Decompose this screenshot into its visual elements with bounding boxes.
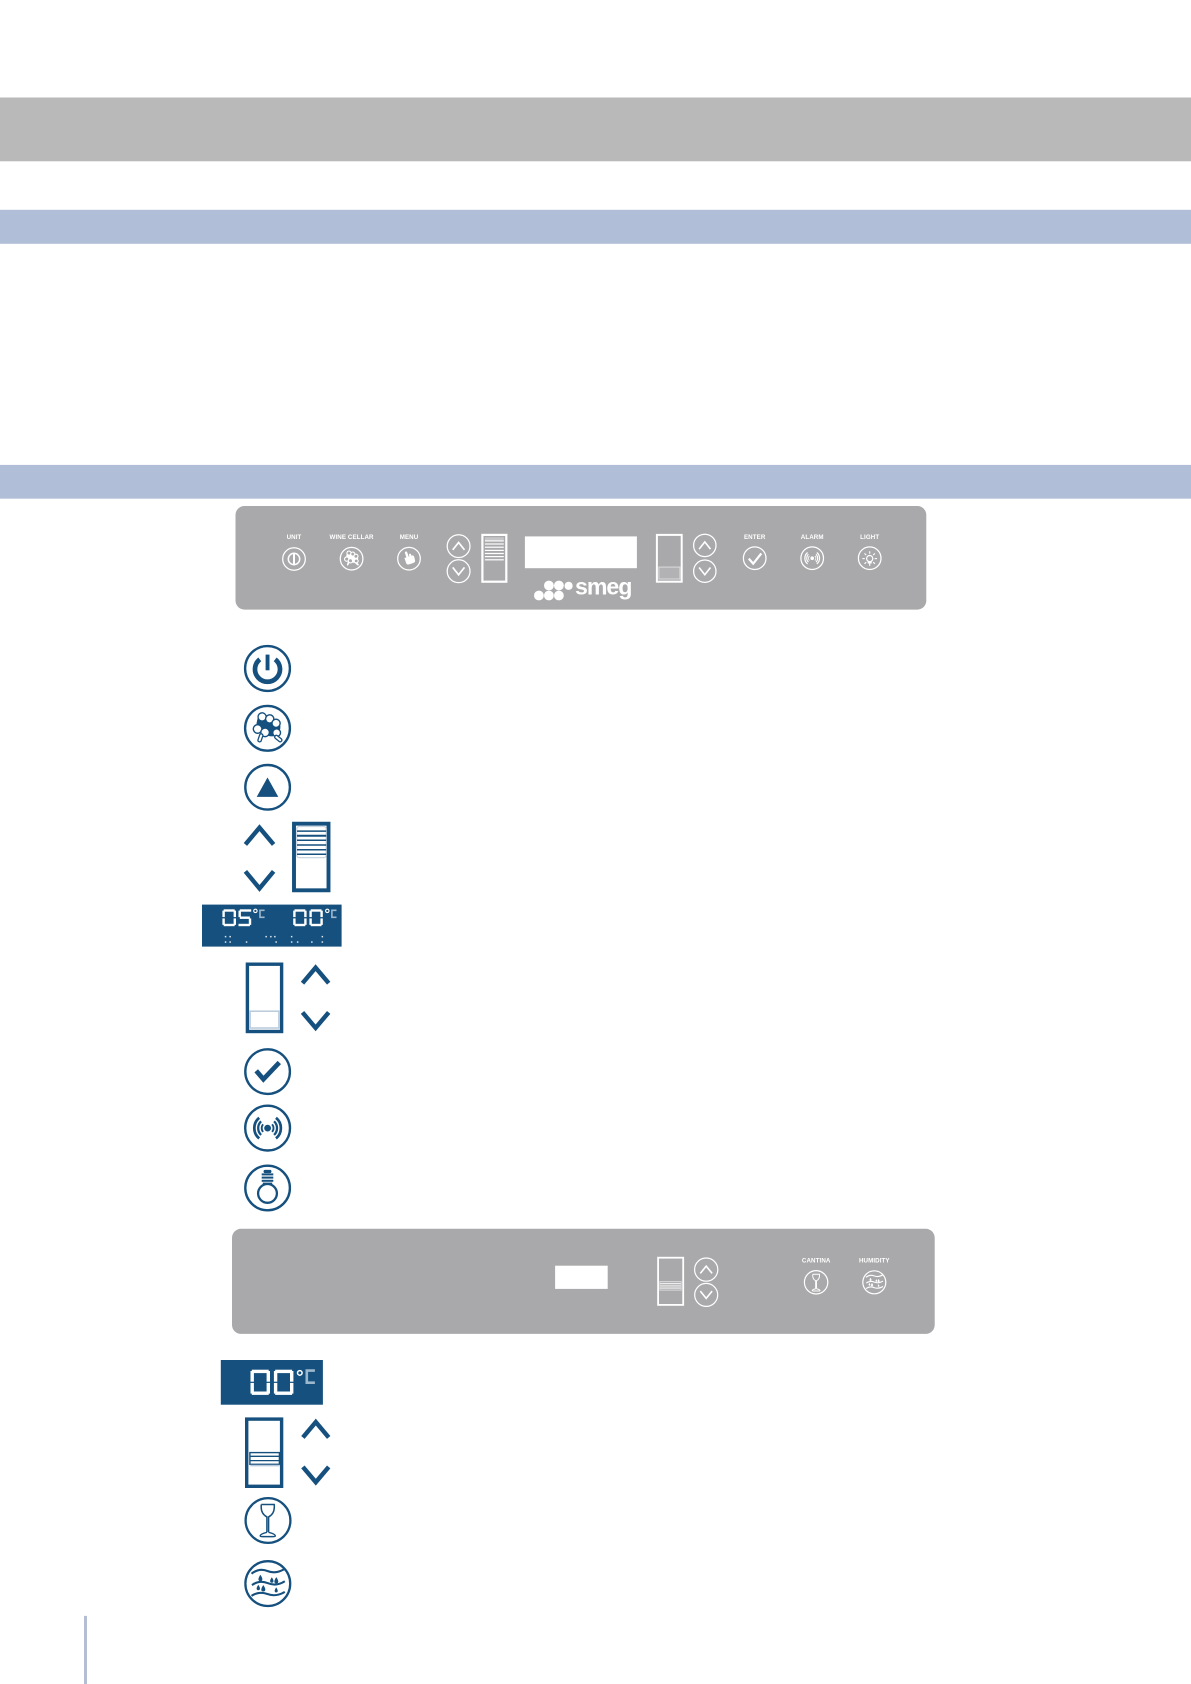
svg-text:HUMIDITY: HUMIDITY [859, 1258, 890, 1265]
svg-text:smeg: smeg [575, 573, 631, 599]
svg-text:LIGHT: LIGHT [860, 534, 879, 541]
svg-text:CANTINA: CANTINA [802, 1258, 831, 1265]
svg-text:ALARM: ALARM [801, 534, 824, 541]
svg-text:ENTER: ENTER [744, 534, 766, 541]
svg-text:WINE CELLAR: WINE CELLAR [330, 534, 374, 541]
svg-text:UNIT: UNIT [287, 534, 302, 541]
svg-text:MENU: MENU [400, 534, 419, 541]
